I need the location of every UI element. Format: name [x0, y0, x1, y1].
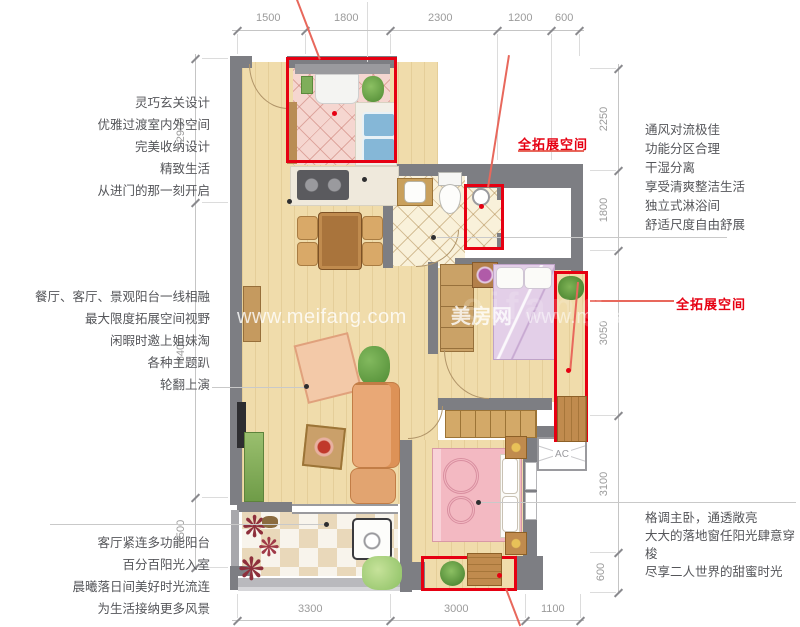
dim-label-bottom-2: 3000 — [444, 603, 468, 615]
flower-plant: ❋ ❋ ❋ — [240, 514, 296, 590]
text-line: 舒适尺度自由舒展 — [645, 216, 745, 235]
ext-line — [305, 34, 306, 54]
dim-label-top-3: 2300 — [428, 12, 452, 24]
green-cabinet — [244, 432, 264, 502]
ext-line — [367, 2, 368, 62]
anchor-dot — [287, 199, 292, 204]
text-line: 最大限度拓展空间视野 — [35, 308, 210, 330]
text-line: 闲暇时邀上姐妹淘 — [35, 330, 210, 352]
wall — [515, 556, 543, 590]
dim-label-right-5: 600 — [595, 563, 607, 581]
dim-label-right-4: 3100 — [598, 472, 610, 496]
pillow-icon — [502, 458, 518, 494]
dim-label-top-1: 1500 — [256, 12, 280, 24]
ext-line — [525, 594, 526, 618]
text-block-living: 餐厅、客厅、景观阳台一线相融 最大限度拓展空间视野 闲暇时邀上姐妹淘 各种主题趴… — [35, 286, 210, 396]
text-line: 轮翻上演 — [35, 374, 210, 396]
text-block-entry: 灵巧玄关设计 优雅过渡室内外空间 完美收纳设计 精致生活 从进门的那一刻开启 — [97, 92, 210, 202]
wall — [438, 398, 552, 410]
window — [525, 492, 537, 520]
dim-label-bottom-3: 1100 — [541, 603, 565, 615]
washbasin-icon — [404, 181, 426, 203]
window — [525, 462, 537, 490]
text-line: 完美收纳设计 — [97, 136, 210, 158]
watermark-url-right: www.meifanglo — [526, 306, 667, 328]
plant-icon — [358, 346, 390, 386]
watermark-brand: 美房网 — [451, 306, 513, 328]
anchor-dot — [362, 177, 367, 182]
text-line: 百分百阳光入室 — [72, 554, 210, 576]
ext-line — [590, 415, 616, 416]
dim-tick — [614, 588, 623, 597]
extension-box-kitchen — [286, 57, 397, 163]
ext-line — [202, 202, 228, 203]
watermark: www.meifang.com 美房网 www.meifanglo — [237, 300, 667, 329]
ext-line — [237, 34, 238, 54]
text-line: 优雅过渡室内外空间 — [97, 114, 210, 136]
bed-swirl-decor — [443, 458, 479, 494]
flower-icon: ❋ — [238, 550, 265, 588]
dim-tick — [233, 616, 242, 625]
dim-line-bottom — [232, 620, 584, 621]
plant-icon — [440, 561, 465, 586]
text-line: 功能分区合理 — [645, 140, 745, 159]
ext-line — [590, 170, 616, 171]
dim-label-top-5: 600 — [555, 12, 573, 24]
washing-machine-icon — [352, 518, 392, 560]
dim-tick — [386, 616, 395, 625]
sofa — [352, 382, 400, 468]
master-wardrobe — [445, 410, 537, 438]
text-block-master: 格调主卧，通透敞亮 大大的落地窗任阳光肆意穿梭 尽享二人世界的甜蜜时光 — [645, 509, 800, 581]
nightstand — [505, 436, 527, 459]
ext-line — [590, 250, 616, 251]
dim-line-top — [232, 30, 584, 31]
text-line: 享受清爽整洁生活 — [645, 178, 745, 197]
text-line: 干湿分离 — [645, 159, 745, 178]
text-line: 晨曦落日间美好时光流连 — [72, 576, 210, 598]
ext-line — [590, 552, 616, 553]
dim-label-top-2: 1800 — [334, 12, 358, 24]
plant-icon — [362, 556, 402, 590]
nightstand — [505, 532, 527, 555]
dim-label-right-1: 2250 — [598, 107, 610, 131]
leader-line — [50, 524, 324, 525]
text-line: 从进门的那一刻开启 — [97, 180, 210, 202]
text-line: 通风对流极佳 — [645, 121, 745, 140]
text-block-balcony: 客厅紧连多功能阳台 百分百阳光入室 晨曦落日间美好时光流连 为生活接纳更多风景 — [72, 532, 210, 620]
dim-line-right — [618, 64, 619, 594]
extension-label-2: 全拓展空间 — [676, 294, 746, 313]
ext-line — [590, 592, 616, 593]
dim-label-right-2: 1800 — [598, 198, 610, 222]
armchair — [350, 468, 396, 504]
text-line: 各种主题趴 — [35, 352, 210, 374]
ext-line — [390, 594, 391, 618]
dining-table — [318, 212, 362, 270]
ext-line — [580, 594, 581, 618]
text-line: 格调主卧，通透敞亮 — [645, 509, 800, 527]
extension-box-shower — [464, 184, 504, 250]
ext-line — [590, 68, 616, 69]
cabinet — [557, 396, 587, 442]
text-line: 尽享二人世界的甜蜜时光 — [645, 563, 800, 581]
coffee-table — [302, 424, 346, 470]
anchor-dot — [324, 522, 329, 527]
anchor-dot — [304, 384, 309, 389]
red-anchor-dot — [497, 573, 502, 578]
dim-label-bottom-1: 3300 — [298, 603, 322, 615]
anchor-dot — [431, 235, 436, 240]
red-anchor-dot — [566, 368, 571, 373]
dining-chair — [297, 242, 318, 266]
text-line: 精致生活 — [97, 158, 210, 180]
cabinet — [467, 553, 502, 586]
watermark-url-left: www.meifang.com — [237, 306, 407, 328]
flower-pot — [262, 516, 278, 528]
ext-line — [202, 497, 228, 498]
text-line: 餐厅、客厅、景观阳台一线相融 — [35, 286, 210, 308]
stove-icon — [297, 170, 349, 200]
text-line: 灵巧玄关设计 — [97, 92, 210, 114]
bed-swirl-decor — [447, 496, 475, 524]
ac-platform: AC — [537, 437, 587, 471]
floorplan-page: { "colors": { "accent_red": "#e60012", "… — [0, 0, 800, 627]
dim-tick — [576, 616, 585, 625]
ext-line — [579, 34, 580, 56]
ac-label: AC — [553, 449, 571, 460]
ext-line — [390, 34, 391, 54]
extension-label-1: 全拓展空间 — [518, 134, 588, 153]
text-line: 大大的落地窗任阳光肆意穿梭 — [645, 527, 800, 563]
dim-tick — [521, 616, 530, 625]
leader-line — [212, 387, 305, 388]
text-line: 客厅紧连多功能阳台 — [72, 532, 210, 554]
leader-line — [481, 502, 796, 503]
dining-chair — [362, 242, 383, 266]
ext-line — [497, 34, 498, 160]
dining-chair — [297, 216, 318, 240]
sliding-door — [292, 504, 398, 514]
ext-line — [202, 58, 228, 59]
text-line: 独立式淋浴间 — [645, 197, 745, 216]
red-anchor-dot — [332, 111, 337, 116]
text-line: 为生活接纳更多风景 — [72, 598, 210, 620]
text-block-bathroom: 通风对流极佳 功能分区合理 干湿分离 享受清爽整洁生活 独立式淋浴间 舒适尺度自… — [645, 121, 745, 235]
dining-chair — [362, 216, 383, 240]
dim-label-top-4: 1200 — [508, 12, 532, 24]
ext-line — [237, 594, 238, 618]
red-anchor-dot — [479, 204, 484, 209]
anchor-dot — [476, 500, 481, 505]
